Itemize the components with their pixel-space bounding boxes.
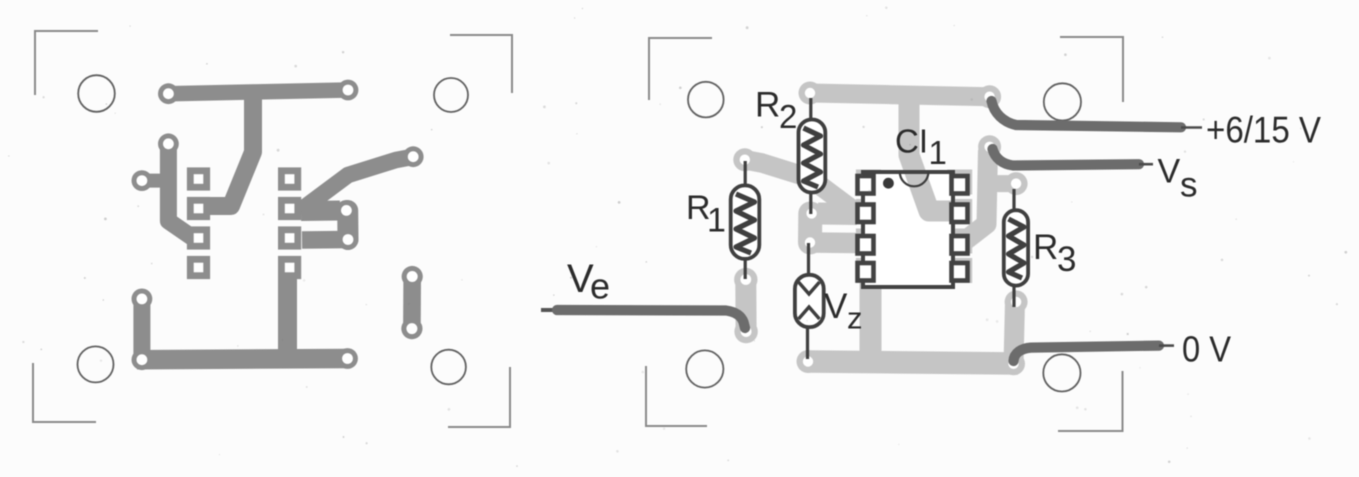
svg-text:3: 3 (1057, 240, 1076, 279)
svg-text:2: 2 (779, 98, 797, 135)
svg-text:V: V (1158, 153, 1181, 191)
svg-text:s: s (1180, 166, 1198, 205)
svg-text:V: V (824, 287, 848, 326)
svg-text:R: R (1033, 228, 1058, 267)
svg-text:z: z (847, 301, 863, 336)
svg-text:e: e (590, 266, 610, 307)
svg-text:1: 1 (929, 134, 947, 171)
svg-text:+6/15 V: +6/15 V (1206, 110, 1321, 151)
svg-text:0 V: 0 V (1182, 329, 1231, 370)
svg-text:1: 1 (707, 202, 726, 240)
svg-text:R: R (755, 86, 780, 125)
svg-text:CI: CI (895, 122, 928, 159)
